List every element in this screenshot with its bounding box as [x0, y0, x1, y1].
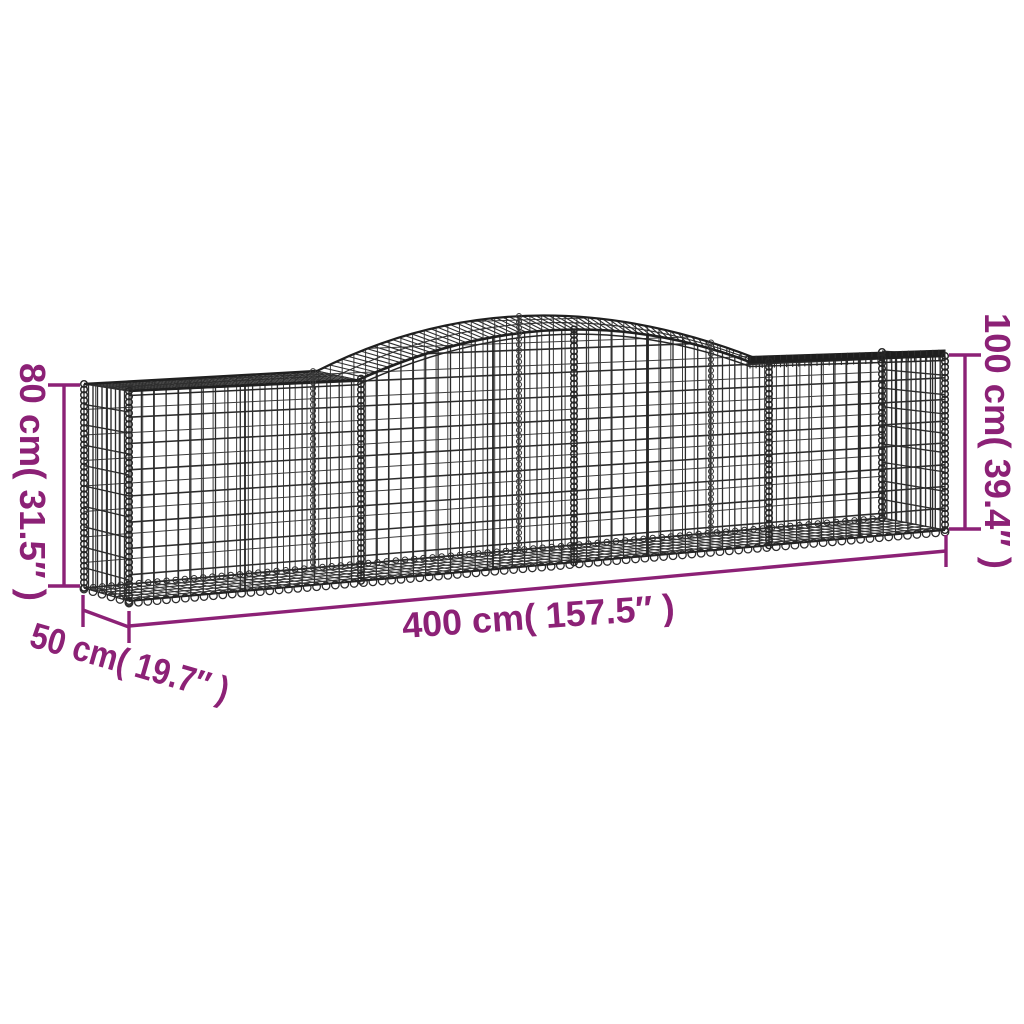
svg-text:80 cm( 31.5″ ): 80 cm( 31.5″ )	[12, 363, 53, 601]
svg-text:400 cm( 157.5″ ): 400 cm( 157.5″ )	[401, 586, 676, 646]
svg-text:100 cm( 39.4″ ): 100 cm( 39.4″ )	[977, 313, 1018, 569]
